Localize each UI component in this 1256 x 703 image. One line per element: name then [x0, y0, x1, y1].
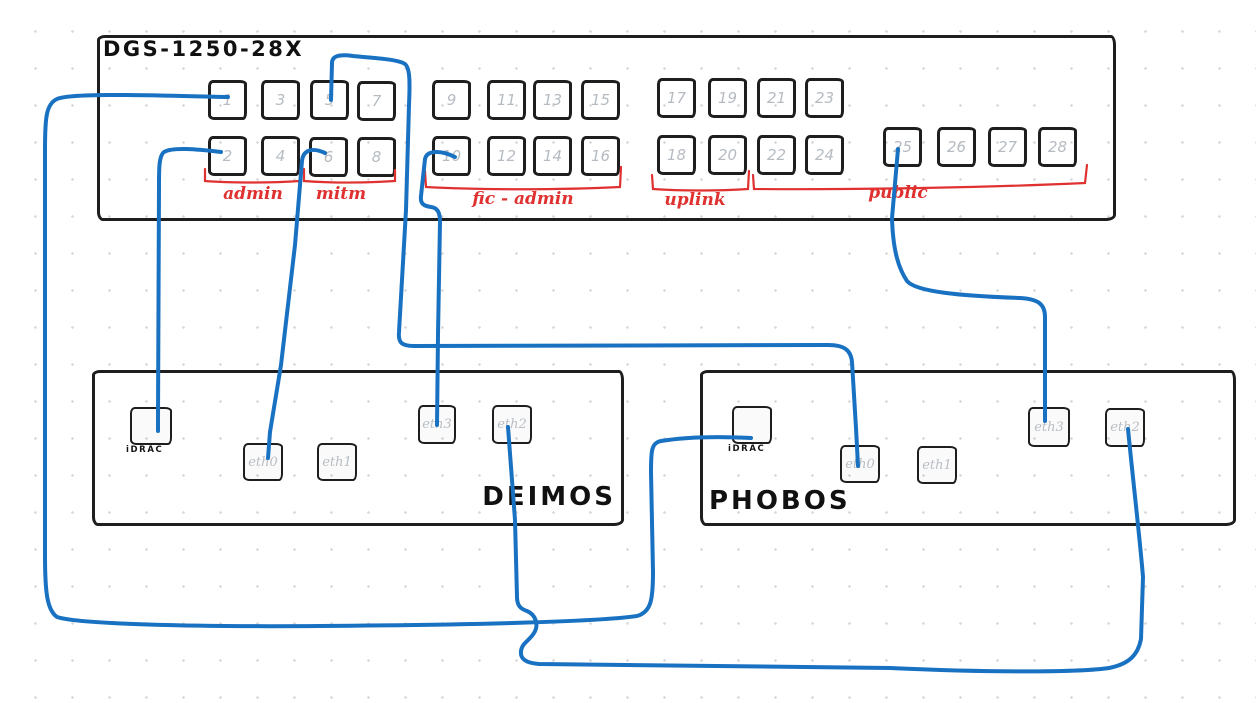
- cable-switch-port-10--deimos-eth3[interactable]: [421, 152, 455, 425]
- port-group-bracket-uplink[interactable]: [652, 171, 749, 191]
- cables-layer: [0, 0, 1256, 703]
- diagram-canvas[interactable]: DGS-1250-28X DEIMOS PHOBOS 1357911131517…: [0, 0, 1256, 703]
- port-group-bracket-public[interactable]: [753, 165, 1087, 189]
- cable-deimos-eth2--phobos-eth2[interactable]: [508, 427, 1143, 671]
- cable-switch-port-25--phobos-eth3[interactable]: [892, 149, 1045, 421]
- port-group-bracket-admin[interactable]: [205, 169, 300, 183]
- cable-switch-port-6--deimos-eth0[interactable]: [268, 150, 325, 458]
- port-group-bracket-mitm[interactable]: [304, 169, 395, 183]
- cable-switch-port-2--deimos-idrac[interactable]: [158, 149, 221, 431]
- cable-switch-port-5--phobos-eth0[interactable]: [331, 55, 858, 466]
- port-group-bracket-fic-admin[interactable]: [425, 167, 621, 189]
- cable-switch-port-1--phobos-idrac[interactable]: [45, 95, 751, 626]
